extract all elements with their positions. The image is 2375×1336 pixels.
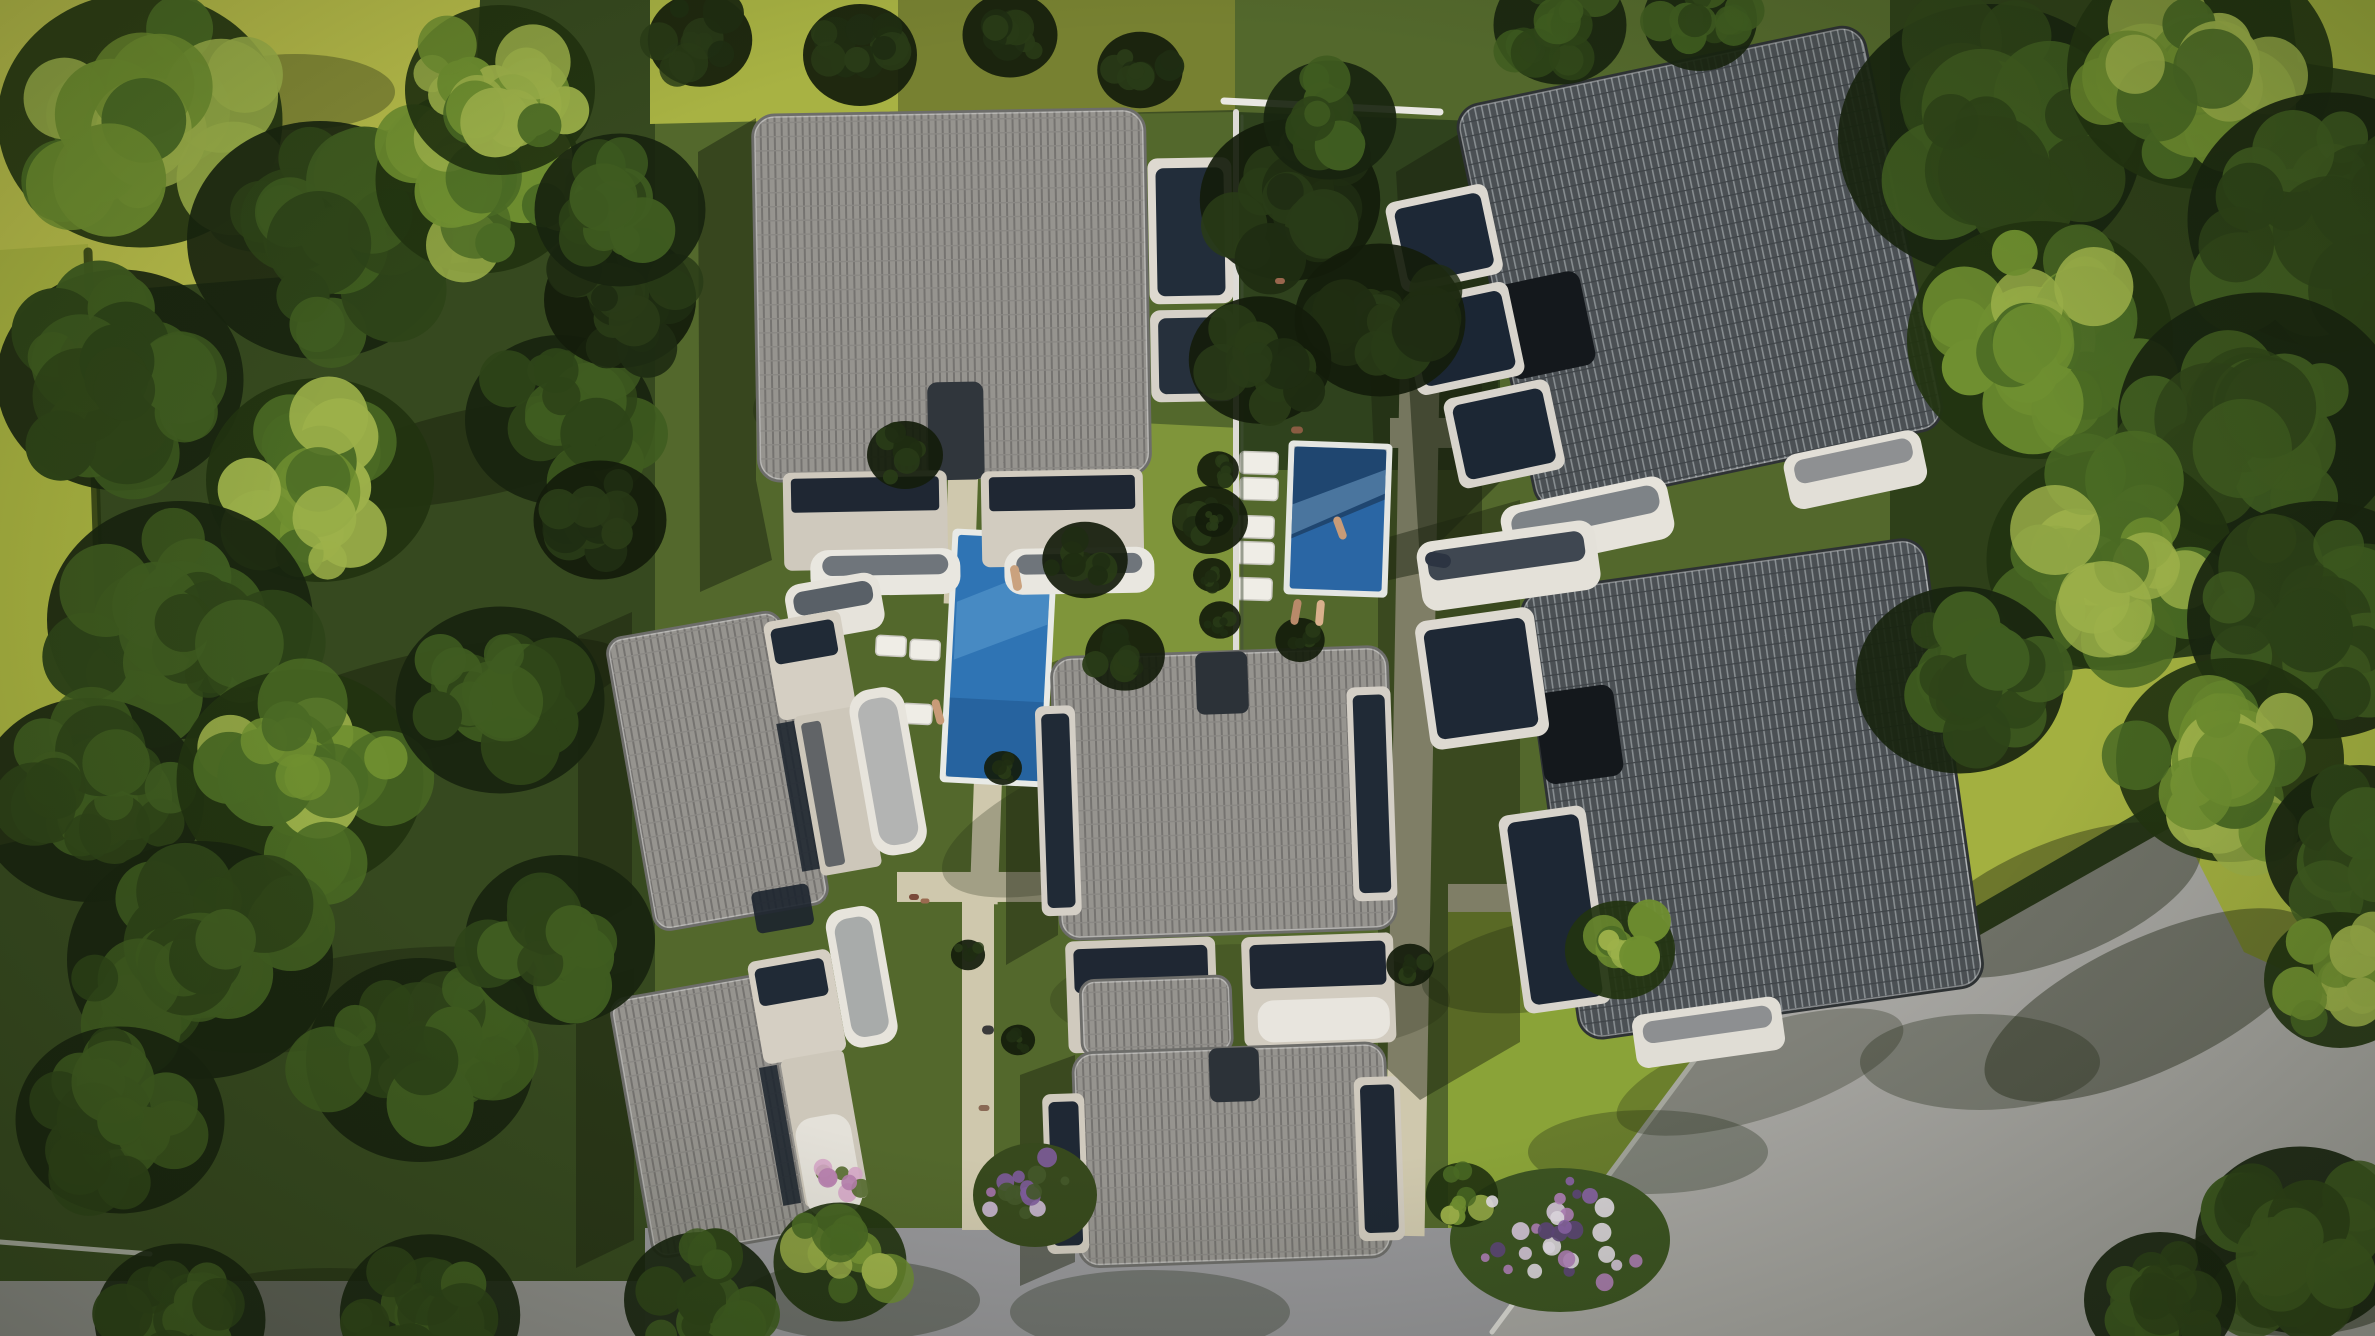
tree-cluster-clump	[484, 634, 524, 674]
tree-cluster-clump	[1025, 42, 1043, 60]
hedge-pool2-4	[1199, 601, 1241, 638]
flower-cluster-front-garden-bloom	[1527, 1264, 1542, 1279]
bush-clump	[1082, 651, 1108, 677]
flower-cluster-small-bloom	[818, 1168, 838, 1188]
villa-5-roof-notch	[1208, 1047, 1260, 1103]
tree-cluster-clump	[2198, 207, 2274, 283]
hedge-pool2-4-clump	[1219, 617, 1227, 625]
hedge-pool2-3-clump	[1205, 570, 1218, 583]
tree-cluster-clump	[1160, 50, 1181, 71]
tree-cluster-clump	[792, 1213, 818, 1239]
tree-cluster-clump	[2010, 485, 2100, 575]
tree-cluster-clump	[811, 20, 837, 46]
tree-cluster-clump	[1328, 125, 1365, 162]
tree-cluster-clump	[2106, 35, 2165, 94]
bush-front-garden-clump	[1452, 1196, 1466, 1210]
flower-cluster-center-path-bloom	[1037, 1147, 1057, 1167]
flower-cluster-center-path-bloom	[986, 1187, 996, 1197]
flower-cluster-center-path-bloom	[982, 1201, 998, 1217]
scene-root	[0, 0, 2375, 1336]
flower-cluster-small-bloom	[841, 1175, 857, 1191]
flower-cluster-center-path-bloom	[1026, 1184, 1042, 1200]
tree-cluster-clump	[53, 123, 166, 236]
villa-5-wing-right-glass	[1360, 1084, 1399, 1233]
flower-cluster-front-garden-bloom	[1519, 1247, 1532, 1260]
hedge-pool2-1	[1197, 451, 1239, 488]
tree-cluster-clump	[308, 541, 347, 580]
bush-clump	[1043, 559, 1059, 575]
tree-cluster-clump	[285, 755, 331, 801]
tree-cluster-clump	[570, 163, 638, 231]
bush-front-garden-clump	[1453, 1161, 1472, 1180]
tree-cluster-clump	[267, 191, 372, 296]
tree-cluster-clump	[702, 1249, 732, 1279]
lounger-pool2-2	[1240, 477, 1279, 500]
flower-cluster-front-garden-bloom	[1566, 1177, 1575, 1186]
flower-cluster-front-garden-bloom	[1490, 1242, 1505, 1257]
tree-cluster-clump	[707, 41, 734, 68]
tree-cluster-clump	[82, 729, 150, 797]
tree-cluster-clump	[560, 398, 633, 471]
tree-cluster-clump	[1392, 294, 1460, 362]
tree-front-garden-clump	[1598, 930, 1619, 951]
tree-cluster-clump	[1993, 304, 2075, 386]
lounger-pool2-5	[1234, 577, 1273, 600]
hedge-pool2-4-clump	[1204, 620, 1212, 628]
tree-cluster-clump	[2102, 720, 2172, 790]
tree-cluster-clump	[982, 15, 1008, 41]
flower-cluster-front-garden-bloom	[1595, 1198, 1615, 1218]
flower-cluster-center-path-bloom	[1060, 1176, 1069, 1185]
tree-cluster-clump	[2167, 1271, 2222, 1326]
tree-cluster-clump	[1520, 38, 1545, 63]
tree-cluster-clump	[24, 758, 85, 819]
person-center-path	[982, 1025, 994, 1034]
tree-cluster-clump	[1678, 3, 1712, 37]
child-1	[909, 894, 919, 900]
flower-cluster-front-garden-bloom	[1486, 1195, 1498, 1207]
lounger-pool2-1	[1240, 451, 1279, 474]
bush	[1386, 944, 1434, 987]
flower-cluster-front-garden-bloom	[1592, 1223, 1611, 1242]
tree-cluster-clump	[49, 1132, 112, 1195]
tree-cluster-clump	[495, 24, 570, 99]
tree-cluster-clump	[160, 383, 218, 441]
flower-cluster-front-garden-bloom	[1611, 1260, 1622, 1271]
bush-clump	[883, 469, 898, 484]
bush-clump	[894, 448, 920, 474]
flower-cluster-front-garden-bloom	[1558, 1220, 1572, 1234]
tree-cluster-clump	[2313, 520, 2364, 571]
bush-clump	[885, 422, 906, 443]
tree-cluster-clump	[289, 377, 368, 456]
tree-cluster-clump	[828, 1274, 857, 1303]
tree-cluster-clump	[1289, 189, 1359, 259]
aerial-render-svg	[0, 0, 2375, 1336]
bush	[1042, 522, 1128, 599]
hedge-pool2-1-clump	[1218, 473, 1233, 488]
walker-top-path	[1275, 278, 1285, 284]
tree-cluster-clump	[262, 701, 312, 751]
tree-cluster-clump	[2269, 588, 2353, 672]
tree-cluster	[405, 5, 595, 175]
bush-clump	[1061, 527, 1088, 554]
bush-clump	[1017, 1043, 1024, 1050]
tree-cluster-clump	[546, 905, 598, 957]
tree-cluster-clump	[534, 348, 579, 393]
tree-front-garden-clump	[1628, 899, 1671, 942]
tree-cluster-clump	[293, 486, 357, 550]
bush-clump	[1117, 645, 1139, 667]
tree-cluster-clump	[1355, 331, 1400, 376]
hedge-pool2-2	[1195, 503, 1233, 537]
villa-5-upper-roof	[1080, 976, 1233, 1057]
tree-cluster-clump	[366, 1246, 417, 1297]
bush-clump	[954, 944, 963, 953]
flower-cluster-front-garden-bloom	[1582, 1188, 1598, 1204]
tree-cluster-clump	[669, 43, 709, 83]
tree-cluster-clump	[207, 37, 283, 113]
bush	[951, 940, 985, 971]
tree-cluster-clump	[1923, 94, 1978, 149]
lounger-pool1-3	[875, 635, 906, 657]
tree-cluster-clump	[2247, 514, 2297, 564]
aerial-render-stage	[0, 0, 2375, 1336]
villa-3-terrace-2-glass	[1423, 617, 1539, 740]
bush	[867, 421, 943, 489]
tree-cluster-clump	[635, 1266, 685, 1316]
bush	[1001, 1025, 1035, 1056]
flower-cluster-front-garden-bloom	[1512, 1222, 1530, 1240]
person-south-path	[979, 1105, 990, 1111]
flower-cluster-front-garden-bloom	[1554, 1193, 1566, 1205]
shadow-above-villa1	[898, 0, 1235, 118]
tree-cluster-clump	[2191, 723, 2275, 807]
villa-4-balcony-right	[1257, 996, 1390, 1043]
flower-cluster-front-garden-bloom	[1572, 1189, 1581, 1198]
flower-cluster-front-garden-bloom	[1596, 1273, 1614, 1291]
tree-cluster-clump	[415, 634, 467, 686]
tree-cluster-clump	[811, 42, 846, 77]
tree-cluster-clump	[195, 909, 256, 970]
tree-cluster	[396, 606, 605, 793]
tree-cluster-clump	[1304, 101, 1330, 127]
tree-cluster-clump	[71, 955, 118, 1002]
villa-1-terrace-right-glass	[989, 475, 1136, 512]
tree-cluster-clump	[97, 1097, 145, 1145]
tree-cluster-clump	[862, 1253, 898, 1289]
tree-cluster-clump	[479, 350, 536, 407]
lounger-pool1-4	[909, 639, 940, 661]
tree-cluster-clump	[418, 16, 477, 75]
tree-cluster-clump	[2285, 978, 2327, 1020]
bush-clump	[1062, 553, 1086, 577]
villa-1-balcony-left-inner	[822, 554, 948, 576]
tree-cluster-clump	[1966, 627, 2029, 690]
villa-3-roof-notch	[1533, 683, 1625, 785]
tree-front-garden-clump	[1619, 935, 1660, 976]
tree-cluster-clump	[334, 1005, 376, 1047]
tree-cluster-clump	[289, 297, 344, 352]
tree-cluster-clump	[2173, 29, 2253, 109]
flower-cluster-front-garden-bloom	[1598, 1246, 1615, 1263]
tree-cluster-clump	[389, 1026, 458, 1095]
tree-cluster-clump	[1128, 63, 1145, 80]
walker-east-path	[1291, 426, 1303, 433]
tree-cluster-clump	[475, 223, 515, 263]
bush-clump	[1010, 1028, 1022, 1040]
tree-cluster-clump	[2056, 561, 2152, 657]
hedge-pool2-2-clump	[1209, 522, 1218, 531]
tree-cluster-clump	[140, 1101, 209, 1170]
bush-clump	[1406, 957, 1416, 967]
bush-clump	[1092, 553, 1110, 571]
tree-cluster-clump	[872, 36, 896, 60]
tree-cluster-clump	[2236, 1217, 2316, 1297]
bush-clump	[1416, 954, 1433, 971]
tree-cluster-clump	[1920, 655, 1965, 700]
tree-cluster	[534, 460, 667, 579]
tree-cluster-clump	[2203, 571, 2255, 623]
tree-cluster-clump	[1193, 344, 1249, 400]
villa-4-roof-notch	[1195, 651, 1249, 715]
tree-cluster	[803, 4, 917, 106]
flower-cluster-center-path-bloom	[1012, 1171, 1024, 1183]
tree-cluster-clump	[596, 491, 638, 533]
tree-cluster	[535, 133, 706, 286]
bush	[984, 751, 1022, 785]
tree-cluster-clump	[591, 284, 618, 311]
tree-cluster-clump	[2306, 1239, 2375, 1309]
villa-4-terrace-right-glass	[1249, 940, 1386, 989]
tree-cluster-clump	[820, 1223, 859, 1262]
tree-cluster-clump	[517, 103, 561, 147]
flower-cluster-front-garden-bloom	[1503, 1265, 1513, 1275]
tree-cluster-clump	[2193, 399, 2292, 498]
tree-cluster-clump	[1992, 230, 2038, 276]
tree-cluster-clump	[413, 691, 462, 740]
tree-cluster-clump	[1715, 6, 1744, 35]
tree-cluster-clump	[1303, 55, 1351, 103]
flower-cluster-front-garden-bloom	[1481, 1253, 1490, 1262]
flower-cluster-front-garden-bloom	[1629, 1254, 1642, 1267]
bush-clump	[992, 760, 1007, 775]
flower-cluster-front-garden-bloom	[1543, 1242, 1555, 1254]
child-2	[921, 898, 930, 903]
bush-clump	[972, 942, 984, 954]
tree-cluster-clump	[93, 359, 155, 421]
tree-cluster-clump	[364, 736, 407, 779]
tree-cluster-clump	[192, 1278, 245, 1331]
tree-cluster-clump	[844, 47, 870, 73]
flower-cluster-front-garden-bloom	[1558, 1250, 1575, 1267]
